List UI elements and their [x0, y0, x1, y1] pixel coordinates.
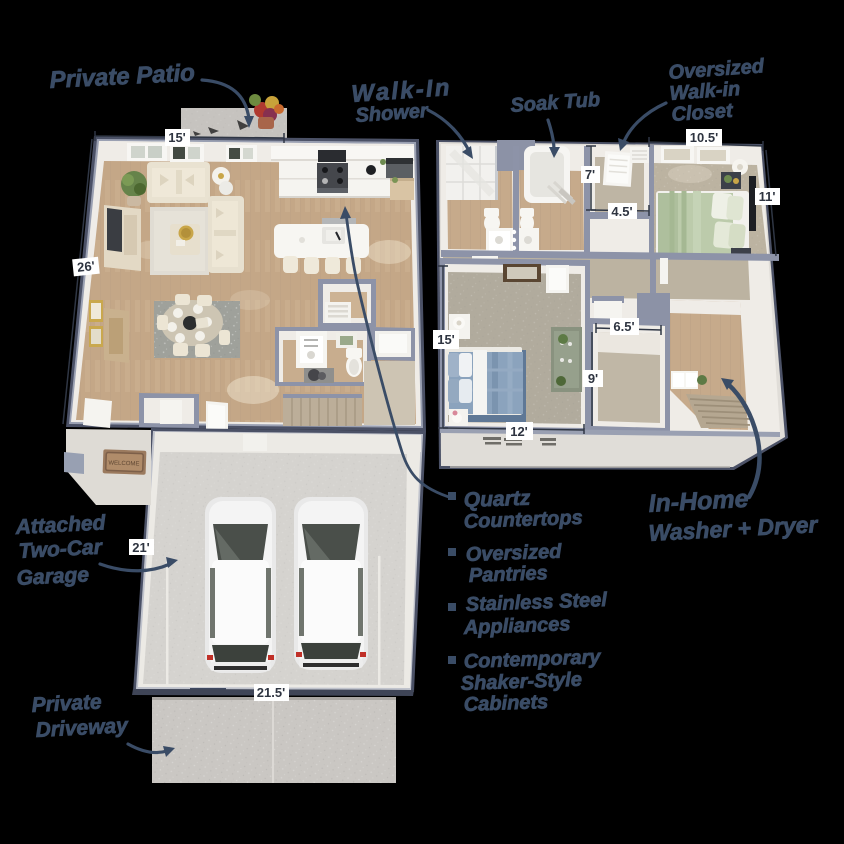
svg-text:Closet: Closet: [671, 100, 735, 126]
svg-text:26': 26': [76, 258, 95, 275]
svg-text:In-Home: In-Home: [648, 485, 749, 518]
svg-text:12': 12': [510, 424, 528, 439]
svg-text:Countertops: Countertops: [463, 507, 583, 533]
svg-text:15': 15': [168, 130, 186, 145]
svg-text:Two-Car: Two-Car: [18, 536, 104, 563]
svg-text:Garage: Garage: [16, 563, 90, 590]
svg-text:6.5': 6.5': [613, 319, 634, 334]
svg-text:21': 21': [132, 540, 150, 555]
svg-text:9': 9': [588, 371, 598, 386]
svg-text:Oversized: Oversized: [465, 541, 562, 566]
svg-text:Pantries: Pantries: [468, 562, 548, 587]
svg-text:Appliances: Appliances: [462, 613, 570, 639]
svg-text:10.5': 10.5': [690, 130, 718, 145]
svg-text:Cabinets: Cabinets: [463, 691, 548, 716]
svg-text:WELCOME: WELCOME: [108, 460, 139, 467]
svg-text:Driveway: Driveway: [35, 714, 130, 742]
svg-text:21.5': 21.5': [257, 685, 285, 700]
svg-text:Attached: Attached: [14, 511, 107, 539]
svg-text:15': 15': [437, 332, 455, 347]
svg-text:Private: Private: [31, 690, 102, 717]
svg-text:7': 7': [585, 167, 595, 182]
svg-text:11': 11': [759, 189, 776, 204]
svg-text:4.5': 4.5': [611, 204, 632, 219]
